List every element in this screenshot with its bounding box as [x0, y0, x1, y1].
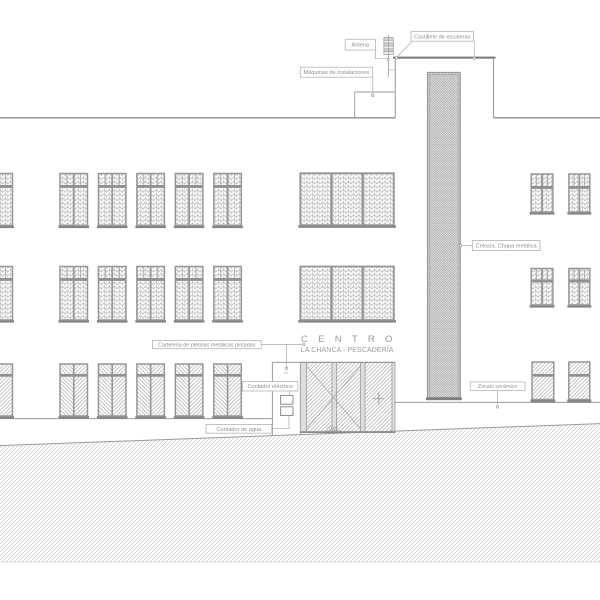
svg-text:CENTRO: CENTRO — [301, 334, 403, 345]
svg-text:Celosía. Chapa metálica: Celosía. Chapa metálica — [476, 244, 538, 250]
svg-text:4: 4 — [291, 401, 293, 405]
svg-text:Contador eléctrico: Contador eléctrico — [247, 384, 292, 390]
svg-text:Cartelería de pletinas metálic: Cartelería de pletinas metálicas pintada… — [158, 342, 256, 348]
svg-text:Antena: Antena — [351, 43, 370, 49]
svg-text:+0,00: +0,00 — [327, 425, 339, 430]
svg-text:LA CHANCA - PESCADERÍA: LA CHANCA - PESCADERÍA — [301, 345, 394, 354]
svg-text:Máquinas de instalaciones: Máquinas de instalaciones — [304, 70, 370, 76]
svg-text:Castillete de escaleras: Castillete de escaleras — [414, 34, 470, 40]
svg-text:23: 23 — [284, 371, 288, 375]
svg-text:Zócalo cerámico: Zócalo cerámico — [478, 384, 518, 390]
svg-text:3: 3 — [291, 412, 293, 416]
svg-text:Contador de agua: Contador de agua — [217, 427, 263, 433]
